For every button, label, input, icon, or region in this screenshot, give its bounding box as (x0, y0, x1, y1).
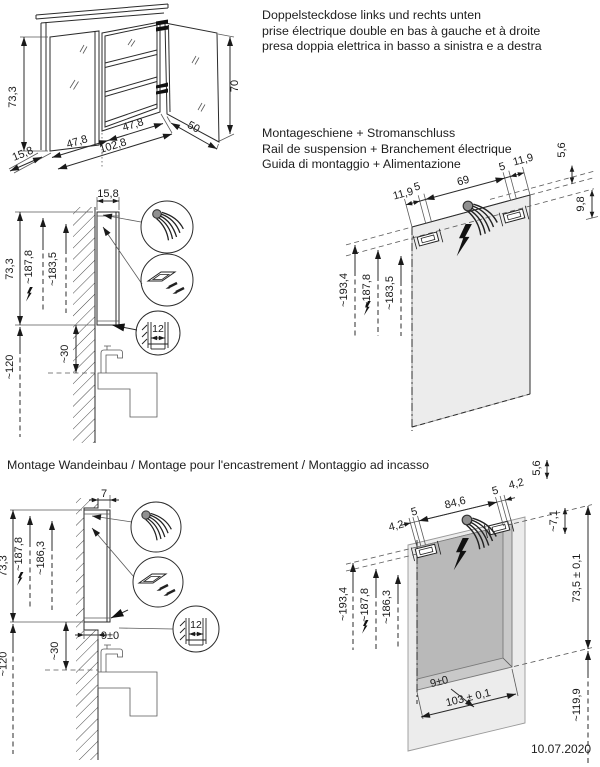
wall-hatch (76, 508, 84, 630)
dimensions: 7 73,3 ~187,8 ~186,3 ~120 ~30 9±0 (0, 488, 119, 754)
dim-label: 12 (152, 323, 164, 335)
dim-label: 4,2 (507, 476, 525, 491)
mirror-glints (70, 39, 205, 112)
dim-label: ~30 (49, 642, 61, 661)
dim-label: ~120 (4, 355, 16, 380)
dim-label: ~119,9 (571, 688, 583, 721)
rail-heading-de: Montageschiene + Stromanschluss (262, 126, 512, 142)
dim-label: ~7,1 (548, 510, 560, 532)
rail-heading-fr: Rail de suspension + Branchement électri… (262, 142, 512, 158)
installation-sheet: 73,3 70 15,8 47,8 47,8 102,8 50 15,8 73,… (0, 0, 600, 767)
dim-label: 9,8 (575, 196, 587, 211)
date-label: 10.07.2020 (531, 742, 591, 756)
cable-icon (153, 210, 184, 241)
dim-label: 12 (190, 619, 202, 631)
cabinet-section (97, 212, 119, 325)
dim-label: 69 (456, 174, 471, 189)
right-dimensions: 5,6 ~7,1 73,5 ± 0,1 ~119,9 (531, 460, 588, 764)
dim-label: ~187,8 (361, 274, 373, 308)
dim-label: 5,6 (556, 142, 568, 157)
dim-label: ~183,5 (384, 276, 396, 310)
dim-label: 5 (410, 506, 419, 519)
dim-label: 5,6 (531, 460, 543, 475)
dim-label: 70 (229, 80, 241, 92)
cabinet-section (84, 510, 110, 622)
dimensions: 15,8 73,3 ~187,8 ~183,5 ~120 ~30 (4, 188, 119, 437)
cabinet-outline-panel (412, 195, 530, 427)
socket-note: Doppelsteckdose links und rechts unten p… (262, 8, 542, 55)
dim-label: 9±0 (101, 630, 119, 642)
cabinet-dimensions: 73,3 70 15,8 47,8 47,8 102,8 50 (7, 34, 241, 173)
dim-label: ~30 (59, 345, 71, 364)
dim-label: ~187,8 (13, 537, 25, 571)
rail-heading: Montageschiene + Stromanschluss Rail de … (262, 126, 512, 173)
dim-label: 73,3 (0, 555, 10, 576)
rail-screws-icon (139, 574, 175, 596)
dim-label: 11,9 (512, 152, 535, 169)
dim-label: 5 (491, 485, 500, 498)
washbasin (98, 645, 157, 716)
lightning-icon (17, 572, 23, 586)
dim-label: 47,8 (121, 116, 145, 134)
dim-label: 5 (413, 181, 422, 194)
recess-niche-front-view: 4,2 5 84,6 5 4,2 5,6 ~7,1 73,5 ± 0,1 ~11… (340, 452, 600, 767)
lightning-icon (26, 287, 33, 301)
dim-label: ~187,8 (359, 588, 371, 622)
dim-label: 84,6 (443, 495, 467, 512)
dim-label: ~120 (0, 652, 10, 677)
surface-mount-side-view: 15,8 73,3 ~187,8 ~183,5 ~120 ~30 12 (0, 185, 250, 453)
dim-label: 73,3 (7, 86, 19, 107)
dim-label: ~186,3 (381, 590, 393, 624)
surface-mount-front-view: 11,9 5 69 5 11,9 5,6 9,8 ~193,4 ~187,8 ~… (340, 138, 600, 450)
socket-note-de: Doppelsteckdose links und rechts unten (262, 8, 542, 24)
cable-detail-circle (141, 201, 193, 253)
height-dimensions: ~193,4 ~187,8 ~186,3 (338, 563, 399, 650)
dim-label: 73,3 (4, 258, 16, 279)
rail-screws-icon (148, 272, 184, 294)
socket-note-fr: prise électrique double en bas à gauche … (262, 24, 542, 40)
dim-label: 102,8 (98, 136, 128, 156)
dim-label: 73,5 ± 0,1 (571, 554, 583, 603)
dim-label: 15,8 (97, 188, 118, 200)
recess-heading: Montage Wandeinbau / Montage pour l'enca… (7, 458, 429, 474)
dim-label: ~186,3 (35, 541, 47, 575)
dim-label: ~193,4 (338, 587, 350, 621)
dim-label: 4,2 (387, 518, 405, 533)
dim-label: ~183,5 (47, 252, 59, 286)
cable-icon (142, 511, 172, 541)
washbasin (98, 346, 157, 417)
dim-label: ~187,8 (23, 250, 35, 284)
rail-heading-it: Guida di montaggio + Alimentazione (262, 157, 512, 173)
cabinet-isometric-drawing: 73,3 70 15,8 47,8 47,8 102,8 50 (2, 0, 260, 183)
left-mirror-door (50, 31, 99, 151)
wall-hatch (76, 630, 98, 760)
dim-label: 47,8 (65, 133, 89, 151)
recess-mount-side-view: 7 73,3 ~187,8 ~186,3 ~120 ~30 9±0 (0, 488, 250, 767)
right-dimensions: 5,6 9,8 (556, 142, 598, 219)
dim-label: ~193,4 (338, 273, 350, 307)
dim-label: 7 (101, 488, 107, 500)
socket-note-it: presa doppia elettrica in basso a sinist… (262, 39, 542, 55)
height-dimensions: ~193,4 ~187,8 ~183,5 (338, 245, 401, 336)
dim-label: 50 (185, 119, 202, 135)
dim-label: 11,9 (392, 186, 415, 203)
carcass-opening (102, 22, 160, 131)
